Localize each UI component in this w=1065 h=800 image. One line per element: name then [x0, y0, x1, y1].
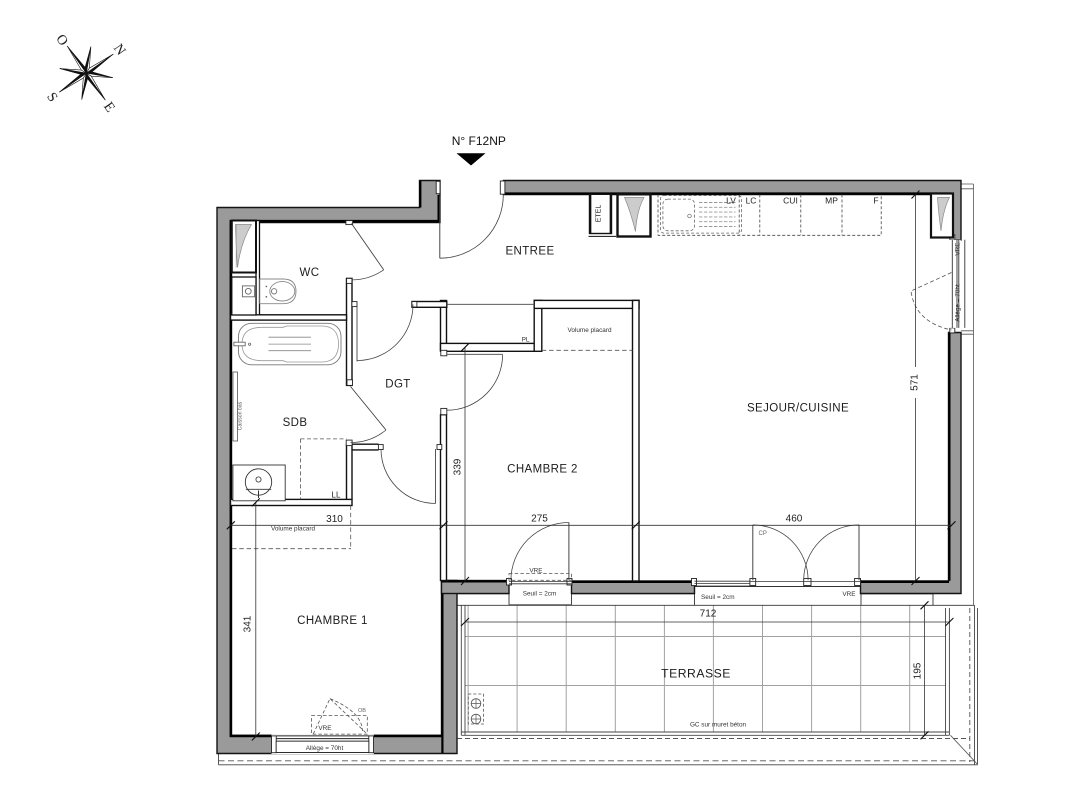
svg-text:Seuil = 2cm: Seuil = 2cm [701, 594, 735, 601]
svg-text:339: 339 [452, 458, 463, 475]
svg-text:WC: WC [300, 267, 320, 279]
svg-text:Seuil = 2cm: Seuil = 2cm [523, 591, 557, 598]
svg-text:VRE: VRE [842, 591, 855, 598]
svg-text:LL: LL [332, 491, 341, 500]
svg-text:CHAMBRE 1: CHAMBRE 1 [297, 615, 368, 627]
svg-text:PL: PL [522, 337, 530, 344]
svg-text:VRE: VRE [955, 242, 962, 255]
svg-text:275: 275 [531, 514, 548, 525]
svg-text:OB: OB [358, 708, 366, 714]
svg-text:N° F12NP: N° F12NP [452, 134, 506, 148]
svg-text:460: 460 [786, 514, 803, 525]
svg-text:CP: CP [759, 531, 767, 537]
svg-text:GC sur muret béton: GC sur muret béton [690, 722, 747, 729]
svg-text:LV: LV [726, 196, 736, 206]
svg-text:Volume placard: Volume placard [567, 327, 611, 334]
svg-text:Volume placard: Volume placard [271, 526, 315, 533]
svg-text:ENTREE: ENTREE [505, 245, 554, 257]
svg-text:TERRASSE: TERRASSE [661, 667, 731, 681]
svg-text:341: 341 [243, 615, 254, 632]
svg-text:MP: MP [825, 196, 838, 206]
svg-text:CHAMBRE 2: CHAMBRE 2 [507, 463, 578, 475]
svg-text:F: F [873, 196, 878, 206]
svg-text:310: 310 [326, 514, 343, 525]
svg-text:SEJOUR/CUISINE: SEJOUR/CUISINE [747, 403, 849, 415]
svg-text:195: 195 [912, 662, 923, 679]
svg-text:VRE: VRE [318, 725, 331, 732]
svg-text:712: 712 [700, 609, 717, 620]
svg-text:VRE: VRE [529, 568, 542, 575]
svg-text:Caisson bas: Caisson bas [238, 401, 244, 430]
svg-text:SDB: SDB [283, 417, 308, 429]
svg-text:571: 571 [910, 374, 921, 391]
svg-text:CUI: CUI [783, 196, 798, 206]
svg-text:DGT: DGT [385, 379, 410, 391]
svg-text:ETEL: ETEL [596, 205, 603, 223]
svg-text:Allège = 70ht: Allège = 70ht [955, 284, 962, 322]
svg-text:Allège = 70ht: Allège = 70ht [306, 745, 344, 752]
svg-text:LC: LC [746, 196, 757, 206]
